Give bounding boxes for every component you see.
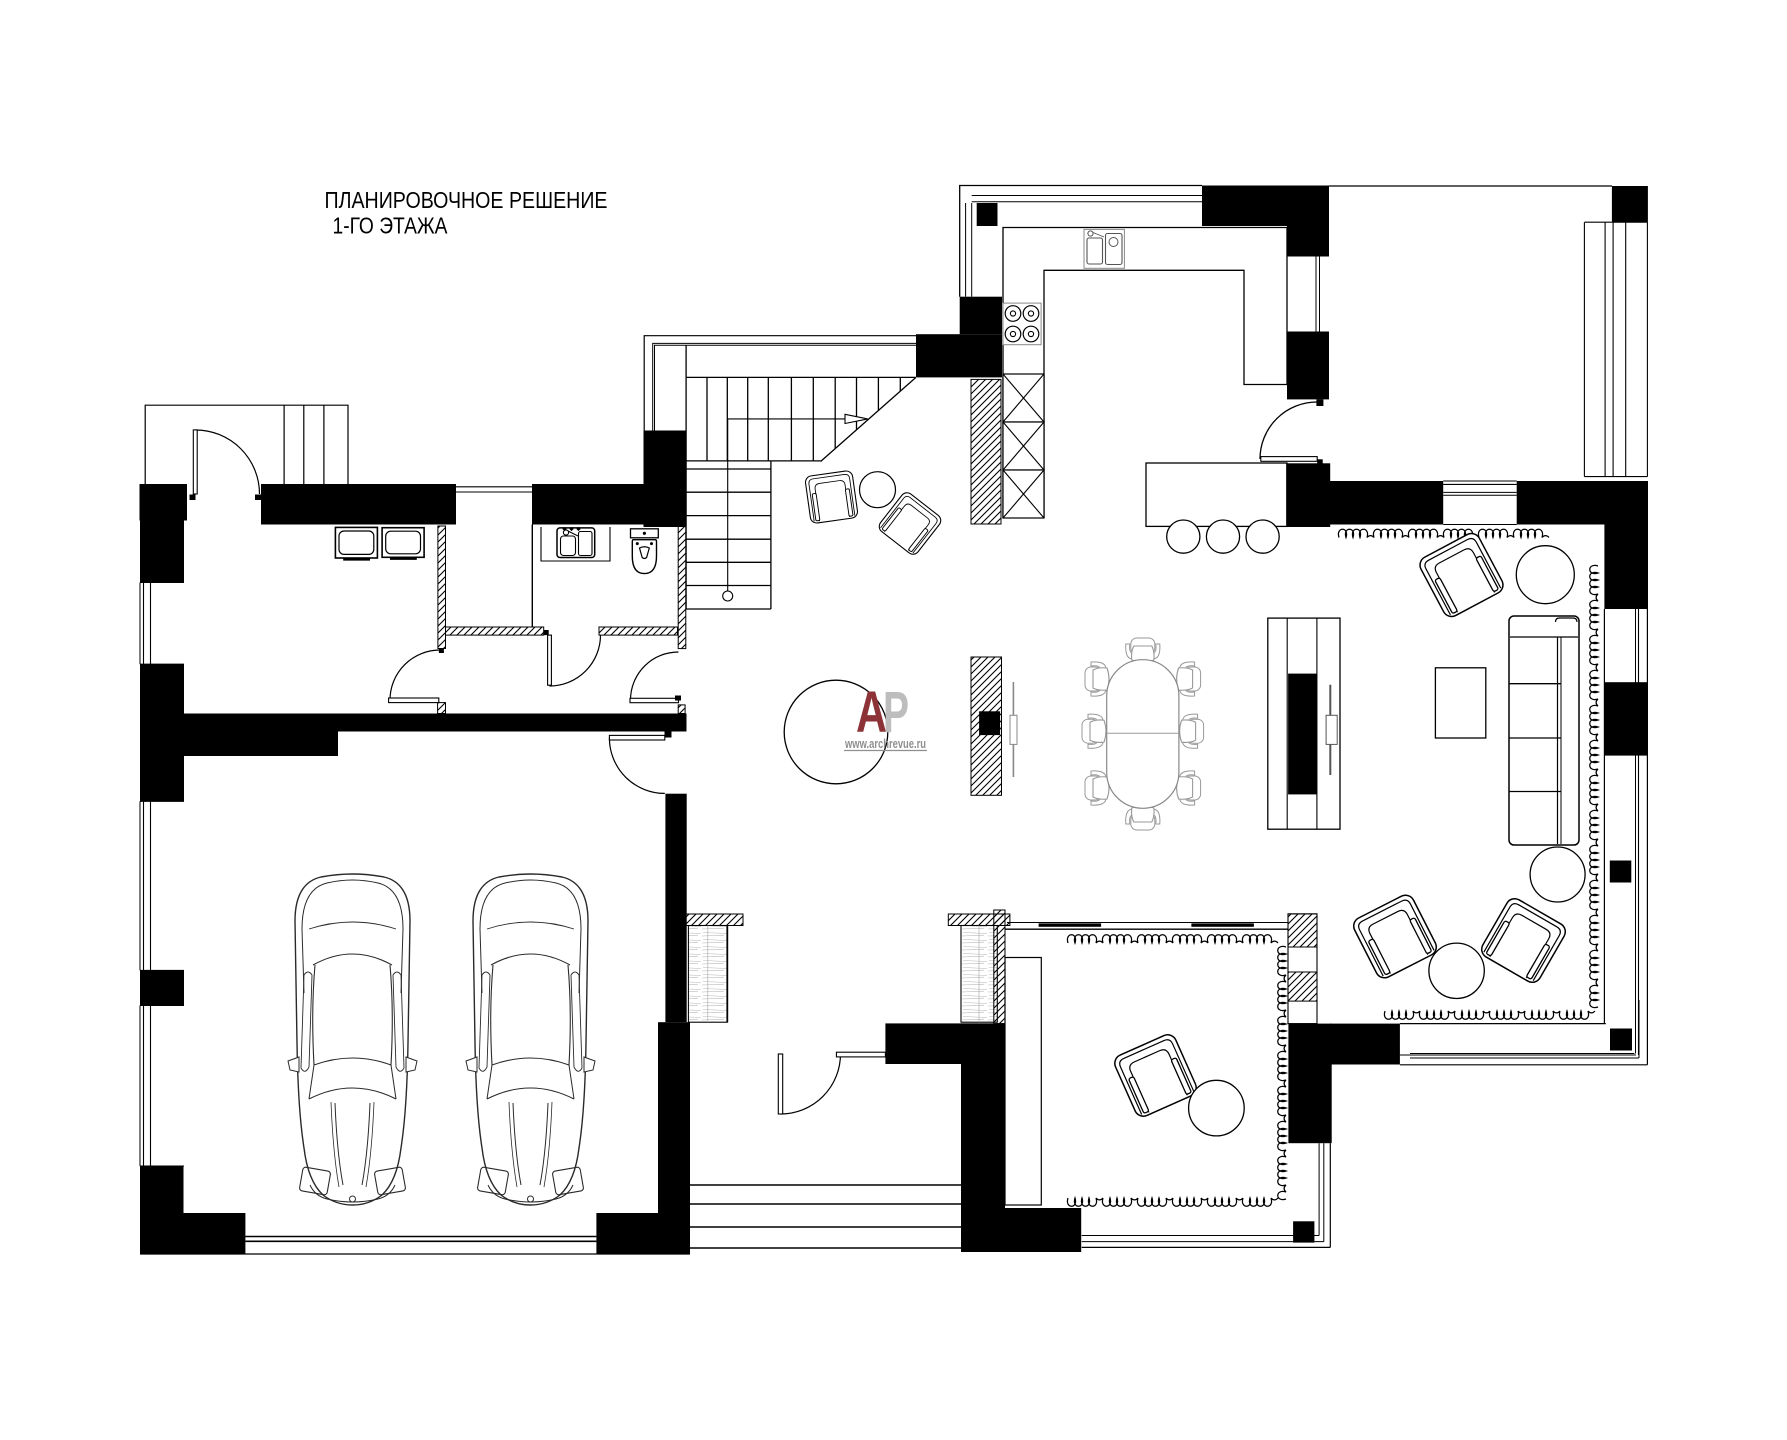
svg-text:1-ГО ЭТАЖА: 1-ГО ЭТАЖА — [333, 213, 448, 239]
svg-text:www.archrevue.ru: www.archrevue.ru — [844, 737, 926, 751]
svg-text:ПЛАНИРОВОЧНОЕ РЕШЕНИЕ: ПЛАНИРОВОЧНОЕ РЕШЕНИЕ — [325, 187, 608, 213]
svg-text:Р: Р — [883, 680, 909, 745]
